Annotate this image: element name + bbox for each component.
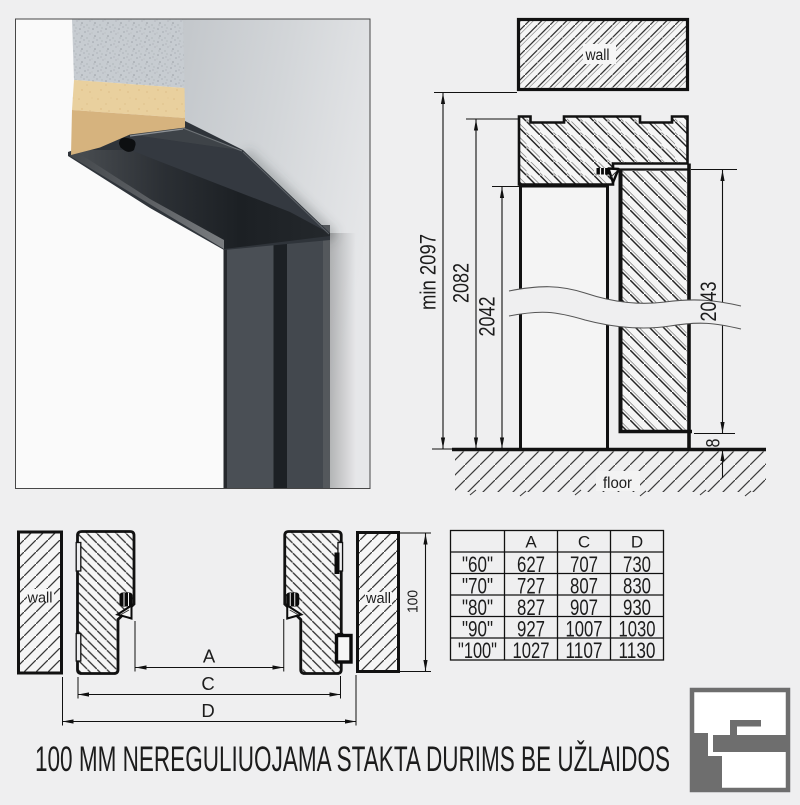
- svg-text:wall: wall: [585, 47, 610, 64]
- svg-text:2042: 2042: [475, 297, 500, 337]
- svg-text:2043: 2043: [696, 282, 721, 322]
- svg-text:floor: floor: [603, 475, 633, 492]
- svg-text:wall: wall: [27, 590, 53, 607]
- svg-text:D: D: [631, 533, 643, 552]
- svg-text:wall: wall: [365, 590, 391, 607]
- svg-text:min 2097: min 2097: [416, 234, 441, 310]
- svg-text:C: C: [578, 533, 590, 552]
- svg-text:D: D: [201, 700, 214, 721]
- svg-text:2082: 2082: [449, 263, 474, 303]
- svg-text:C: C: [201, 673, 214, 694]
- svg-text:"100": "100": [458, 638, 497, 663]
- svg-text:A: A: [203, 646, 216, 667]
- svg-text:8: 8: [704, 439, 725, 448]
- svg-text:100: 100: [405, 590, 422, 613]
- svg-text:100 MM NEREGULIUOJAMA STAKTA D: 100 MM NEREGULIUOJAMA STAKTA DURIMS BE U…: [35, 740, 670, 779]
- svg-text:1027: 1027: [513, 638, 550, 663]
- svg-text:1107: 1107: [566, 638, 603, 663]
- svg-text:A: A: [525, 533, 537, 552]
- svg-text:1130: 1130: [619, 638, 656, 663]
